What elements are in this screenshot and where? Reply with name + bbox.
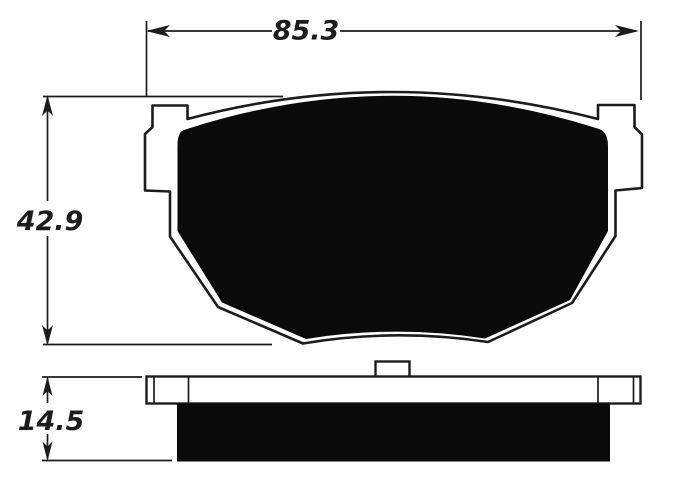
friction-material	[178, 96, 609, 339]
width-dimension-label: 85.3	[273, 16, 340, 47]
side-view-backing-plate	[147, 377, 641, 404]
brake-pad-dimension-drawing: 85.3 42.9 14.5	[0, 0, 674, 478]
drawing-svg: 85.3 42.9 14.5	[0, 0, 674, 478]
side-view-lug	[376, 362, 410, 378]
side-view	[147, 362, 641, 462]
main-view	[145, 92, 642, 344]
dimension-width: 85.3	[146, 16, 641, 101]
thickness-dimension-label: 14.5	[18, 406, 85, 437]
side-view-friction-material	[177, 404, 610, 462]
height-dimension-label: 42.9	[16, 206, 84, 237]
